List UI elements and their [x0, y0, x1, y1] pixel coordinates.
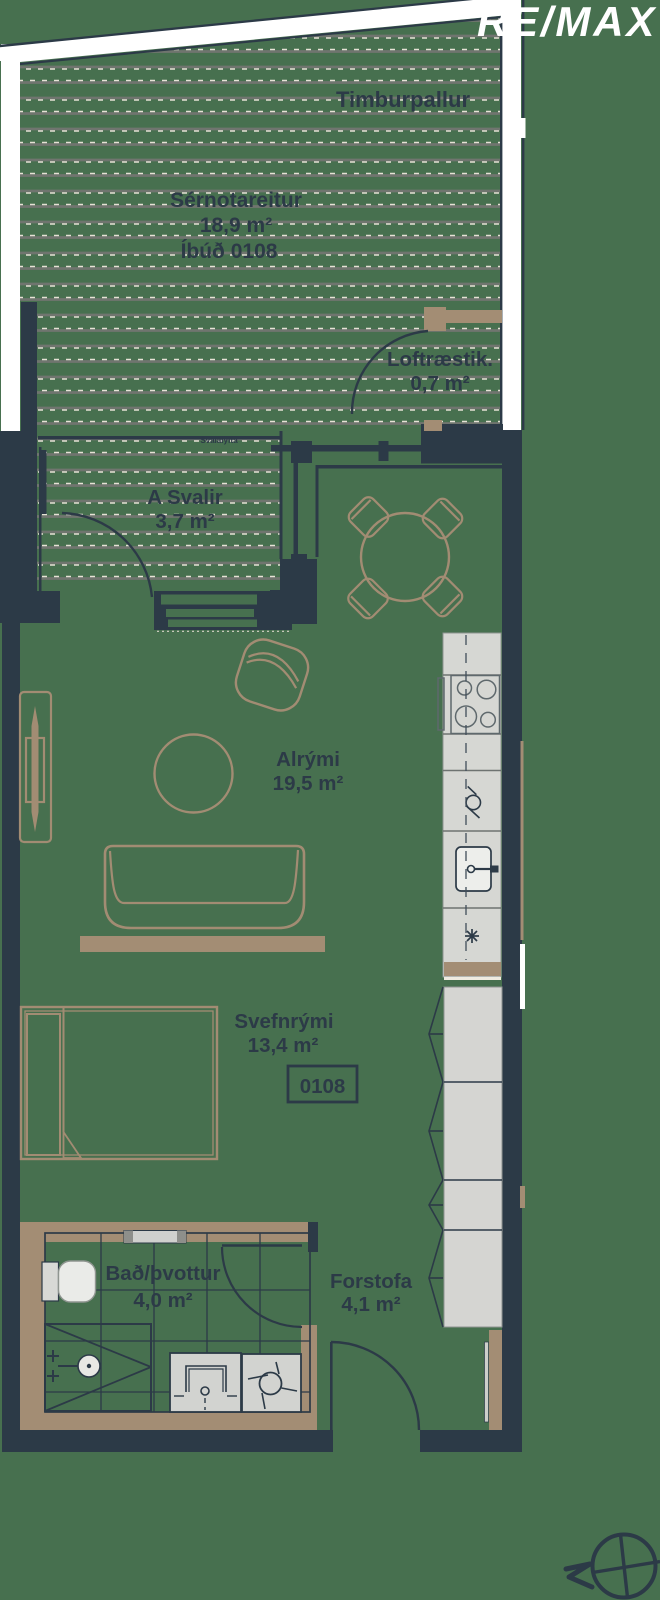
svg-text:0,7 m²: 0,7 m² — [410, 372, 469, 395]
svg-text:Svalalyfta: Svalalyfta — [200, 436, 238, 445]
svg-text:Timburpallur: Timburpallur — [336, 87, 470, 112]
svg-text:4,1 m²: 4,1 m² — [341, 1293, 400, 1316]
svg-text:13,4 m²: 13,4 m² — [248, 1034, 319, 1057]
svg-text:Svefnrými: Svefnrými — [234, 1010, 333, 1033]
svg-text:4,0 m²: 4,0 m² — [133, 1289, 192, 1312]
svg-text:Alrými: Alrými — [276, 748, 340, 771]
svg-text:0108: 0108 — [300, 1075, 346, 1098]
svg-text:3,7 m²: 3,7 m² — [155, 510, 214, 533]
svg-text:Loftræstik.: Loftræstik. — [387, 348, 493, 371]
svg-text:A Svalir: A Svalir — [147, 486, 223, 509]
svg-text:Sérnotareitur: Sérnotareitur — [170, 189, 302, 212]
svg-text:19,5 m²: 19,5 m² — [273, 772, 344, 795]
svg-text:RE/MAX: RE/MAX — [477, 0, 657, 45]
svg-text:18,9 m²: 18,9 m² — [200, 214, 272, 237]
svg-text:Íbúð 0108: Íbúð 0108 — [181, 240, 278, 263]
svg-text:Bað/þvottur: Bað/þvottur — [105, 1262, 220, 1285]
svg-text:Forstofa: Forstofa — [330, 1270, 413, 1293]
